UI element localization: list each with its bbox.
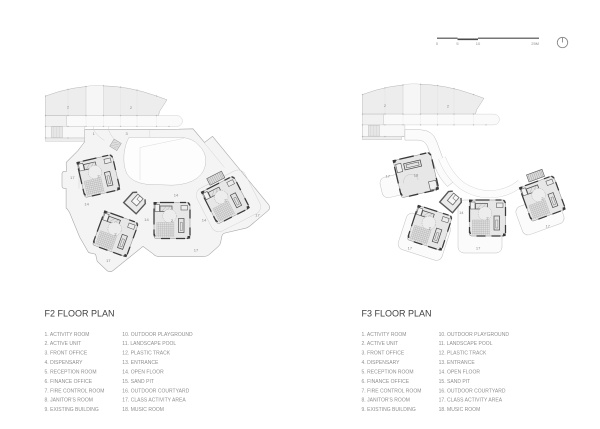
svg-text:13. ENTRANCE: 13. ENTRANCE	[122, 360, 159, 366]
svg-text:14: 14	[202, 218, 207, 223]
svg-text:5. RECEPTION ROOM: 5. RECEPTION ROOM	[45, 370, 97, 376]
svg-text:10. OUTDOOR PLAYGROUND: 10. OUTDOOR PLAYGROUND	[439, 332, 510, 338]
svg-text:17: 17	[194, 248, 199, 253]
svg-text:17. CLASS ACTIVITY AREA: 17. CLASS ACTIVITY AREA	[122, 398, 186, 404]
svg-text:1. ACTIVITY ROOM: 1. ACTIVITY ROOM	[45, 332, 90, 338]
svg-text:12. PLASTIC TRACK: 12. PLASTIC TRACK	[122, 351, 170, 357]
svg-text:12. PLASTIC TRACK: 12. PLASTIC TRACK	[439, 351, 487, 357]
svg-text:15. SAND PIT: 15. SAND PIT	[122, 379, 154, 385]
svg-text:10. OUTDOOR PLAYGROUND: 10. OUTDOOR PLAYGROUND	[122, 332, 193, 338]
svg-text:6. FINANCE OFFICE: 6. FINANCE OFFICE	[45, 379, 93, 385]
svg-text:17: 17	[385, 174, 390, 179]
svg-text:8. JANITOR'S ROOM: 8. JANITOR'S ROOM	[362, 398, 410, 404]
svg-text:18: 18	[414, 173, 419, 178]
svg-text:2. ACTIVE UNIT: 2. ACTIVE UNIT	[45, 341, 82, 347]
svg-text:18. MUSIC ROOM: 18. MUSIC ROOM	[122, 407, 164, 413]
svg-text:16. OUTDOOR COURTYARD: 16. OUTDOOR COURTYARD	[122, 388, 189, 394]
svg-text:4. DISPENSARY: 4. DISPENSARY	[45, 360, 84, 366]
svg-text:14: 14	[459, 210, 464, 215]
svg-text:17: 17	[255, 213, 260, 218]
svg-text:4. DISPENSARY: 4. DISPENSARY	[362, 360, 401, 366]
svg-text:1. ACTIVITY ROOM: 1. ACTIVITY ROOM	[362, 332, 407, 338]
svg-text:10: 10	[476, 41, 481, 46]
svg-text:7. FIRE CONTROL ROOM: 7. FIRE CONTROL ROOM	[45, 388, 105, 394]
svg-text:14. OPEN FLOOR: 14. OPEN FLOOR	[122, 370, 164, 376]
svg-text:13. ENTRANCE: 13. ENTRANCE	[439, 360, 476, 366]
svg-text:7. FIRE CONTROL ROOM: 7. FIRE CONTROL ROOM	[362, 388, 422, 394]
svg-text:25M: 25M	[531, 41, 539, 46]
svg-text:18. MUSIC ROOM: 18. MUSIC ROOM	[439, 407, 481, 413]
svg-text:6. FINANCE OFFICE: 6. FINANCE OFFICE	[362, 379, 410, 385]
svg-text:14: 14	[144, 217, 149, 222]
svg-text:11. LANDSCAPE POOL: 11. LANDSCAPE POOL	[439, 341, 493, 347]
svg-text:14: 14	[84, 202, 89, 207]
svg-text:5. RECEPTION ROOM: 5. RECEPTION ROOM	[362, 370, 414, 376]
svg-text:9. EXISTING BUILDING: 9. EXISTING BUILDING	[362, 407, 416, 413]
svg-text:17: 17	[106, 258, 111, 263]
svg-text:3. FRONT OFFICE: 3. FRONT OFFICE	[362, 351, 405, 357]
svg-text:11. LANDSCAPE POOL: 11. LANDSCAPE POOL	[122, 341, 176, 347]
svg-text:F2 FLOOR PLAN: F2 FLOOR PLAN	[45, 309, 115, 319]
svg-text:8. JANITOR'S ROOM: 8. JANITOR'S ROOM	[45, 398, 93, 404]
svg-text:14. OPEN FLOOR: 14. OPEN FLOOR	[439, 370, 481, 376]
svg-text:17: 17	[476, 246, 481, 251]
svg-text:17. CLASS ACTIVITY AREA: 17. CLASS ACTIVITY AREA	[439, 398, 503, 404]
svg-text:17: 17	[546, 224, 551, 229]
svg-text:15. SAND PIT: 15. SAND PIT	[439, 379, 471, 385]
svg-text:16. OUTDOOR COURTYARD: 16. OUTDOOR COURTYARD	[439, 388, 506, 394]
svg-text:3. FRONT OFFICE: 3. FRONT OFFICE	[45, 351, 88, 357]
svg-text:14: 14	[174, 193, 179, 198]
svg-text:2. ACTIVE UNIT: 2. ACTIVE UNIT	[362, 341, 399, 347]
svg-text:9. EXISTING BUILDING: 9. EXISTING BUILDING	[45, 407, 99, 413]
svg-text:F3 FLOOR PLAN: F3 FLOOR PLAN	[362, 309, 432, 319]
svg-text:17: 17	[70, 175, 75, 180]
svg-text:17: 17	[408, 245, 413, 250]
